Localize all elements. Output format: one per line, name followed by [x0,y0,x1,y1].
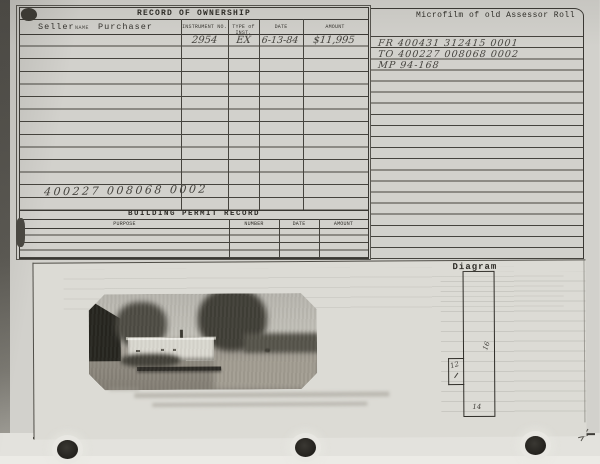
backing-paper-edge [0,456,600,464]
entry-date: 6-13-84 [256,35,303,46]
column-divider [303,19,304,210]
punch-hole [525,436,546,455]
ownership-header-row: Seller NAME Purchaser INSTRUMENT NO. TYP… [20,19,368,35]
column-purchaser: Purchaser [98,22,153,32]
entry-type-of-inst: EX [227,35,259,46]
scan-edge [0,0,10,464]
microfilm-note-mp: MP 94-168 [377,60,440,71]
microfilm-title: Microfilm of old Assessor Roll [371,11,583,20]
column-divider [319,219,320,258]
column-instrument-no: INSTRUMENT NO. [181,24,228,30]
column-permit-amount: AMOUNT [319,221,368,227]
property-photo [89,293,318,390]
record-of-ownership-table: RECORD OF OWNERSHIP Seller NAME Purchase… [19,7,369,211]
permit-ruled-rows [20,228,368,258]
mirrored-stamp-bleed [134,392,389,399]
column-permit-date: DATE [279,221,319,227]
column-name-sub: NAME [75,25,89,31]
column-divider [228,19,229,210]
photo-grain-texture [89,293,318,390]
column-amount: AMOUNT [303,24,367,30]
building-permit-table: BUILDING PERMIT RECORD PURPOSE NUMBER DA… [19,209,369,259]
punch-hole [295,438,316,457]
microfilm-panel: Microfilm of old Assessor Roll FR 400431… [371,8,584,259]
entry-instrument-no: 2954 [180,35,228,46]
entry-amount: $11,995 [302,35,365,46]
column-date: DATE [259,24,303,30]
column-number: NUMBER [229,221,279,227]
column-divider [229,219,230,258]
assessor-record-card-scan: RECORD OF OWNERSHIP Seller NAME Purchase… [0,0,600,464]
mirrored-stamp-bleed [152,402,367,407]
mirrored-stamp-bleed [109,387,139,391]
column-divider [259,19,260,210]
microfilm-note-to: TO 400227 008068 0002 [377,49,519,60]
diagram-dimension-bottom: 14 [472,403,481,411]
column-seller: Seller [38,22,75,32]
column-divider [181,19,182,210]
punch-hole [57,440,78,459]
ink-blob [16,218,25,247]
microfilm-note-fr: FR 400431 312415 0001 [377,38,519,49]
column-divider [279,219,280,258]
column-purpose: PURPOSE [20,221,229,227]
lower-card: Diagram 16 12 14 [32,259,586,439]
